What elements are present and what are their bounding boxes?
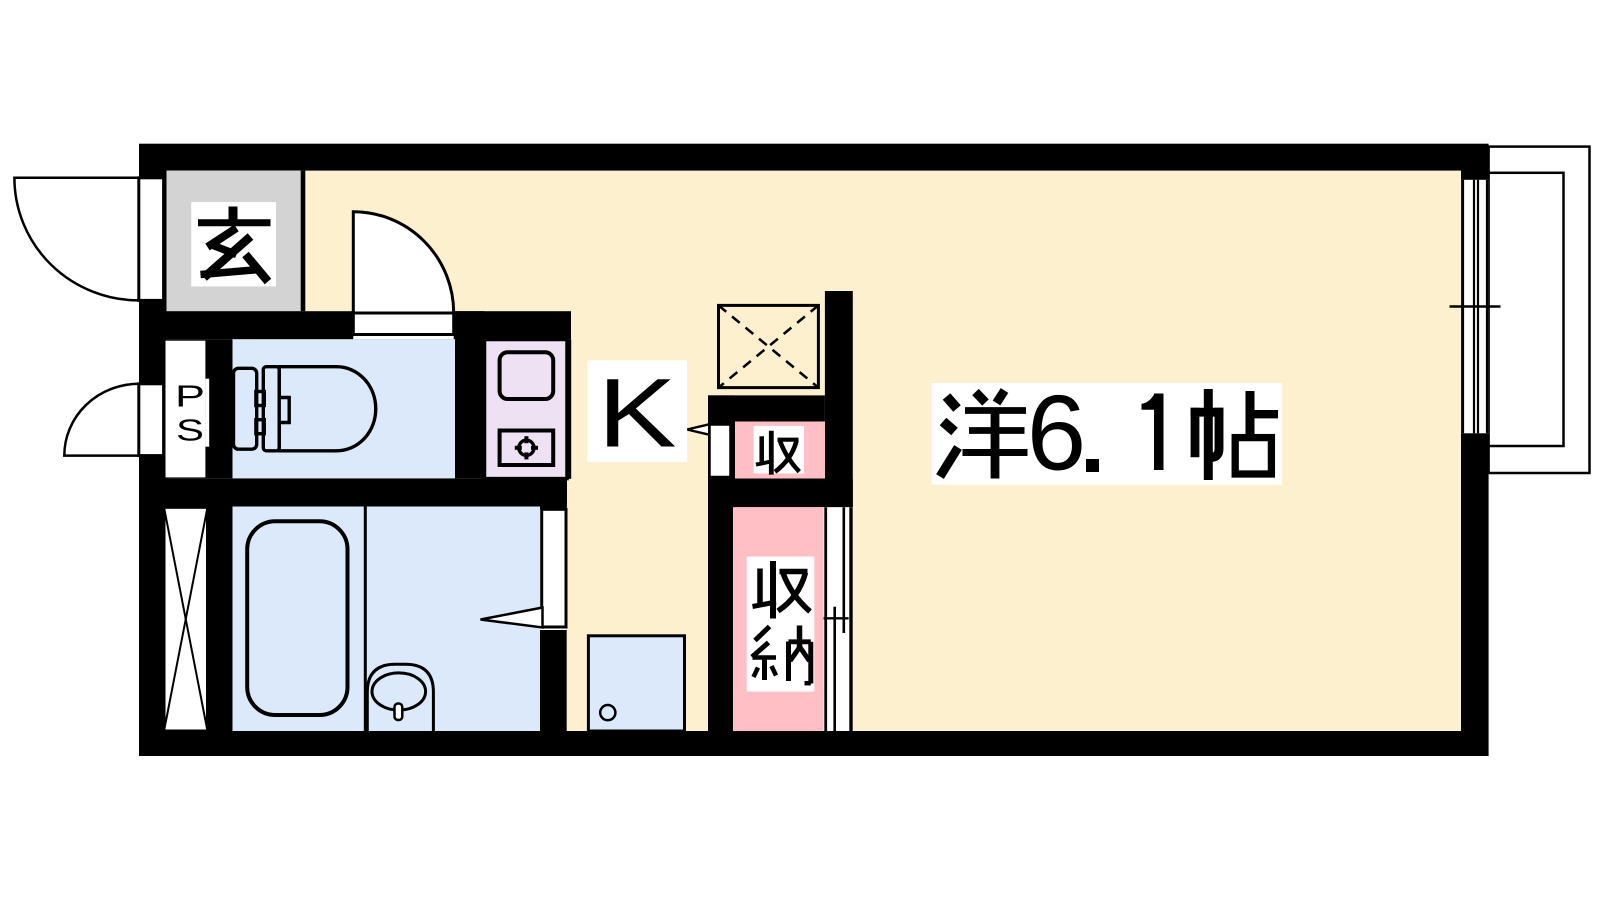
svg-text:S: S	[176, 413, 204, 448]
svg-text:6: 6	[1027, 373, 1087, 493]
svg-text:K: K	[598, 359, 677, 468]
svg-text:P: P	[175, 379, 205, 414]
